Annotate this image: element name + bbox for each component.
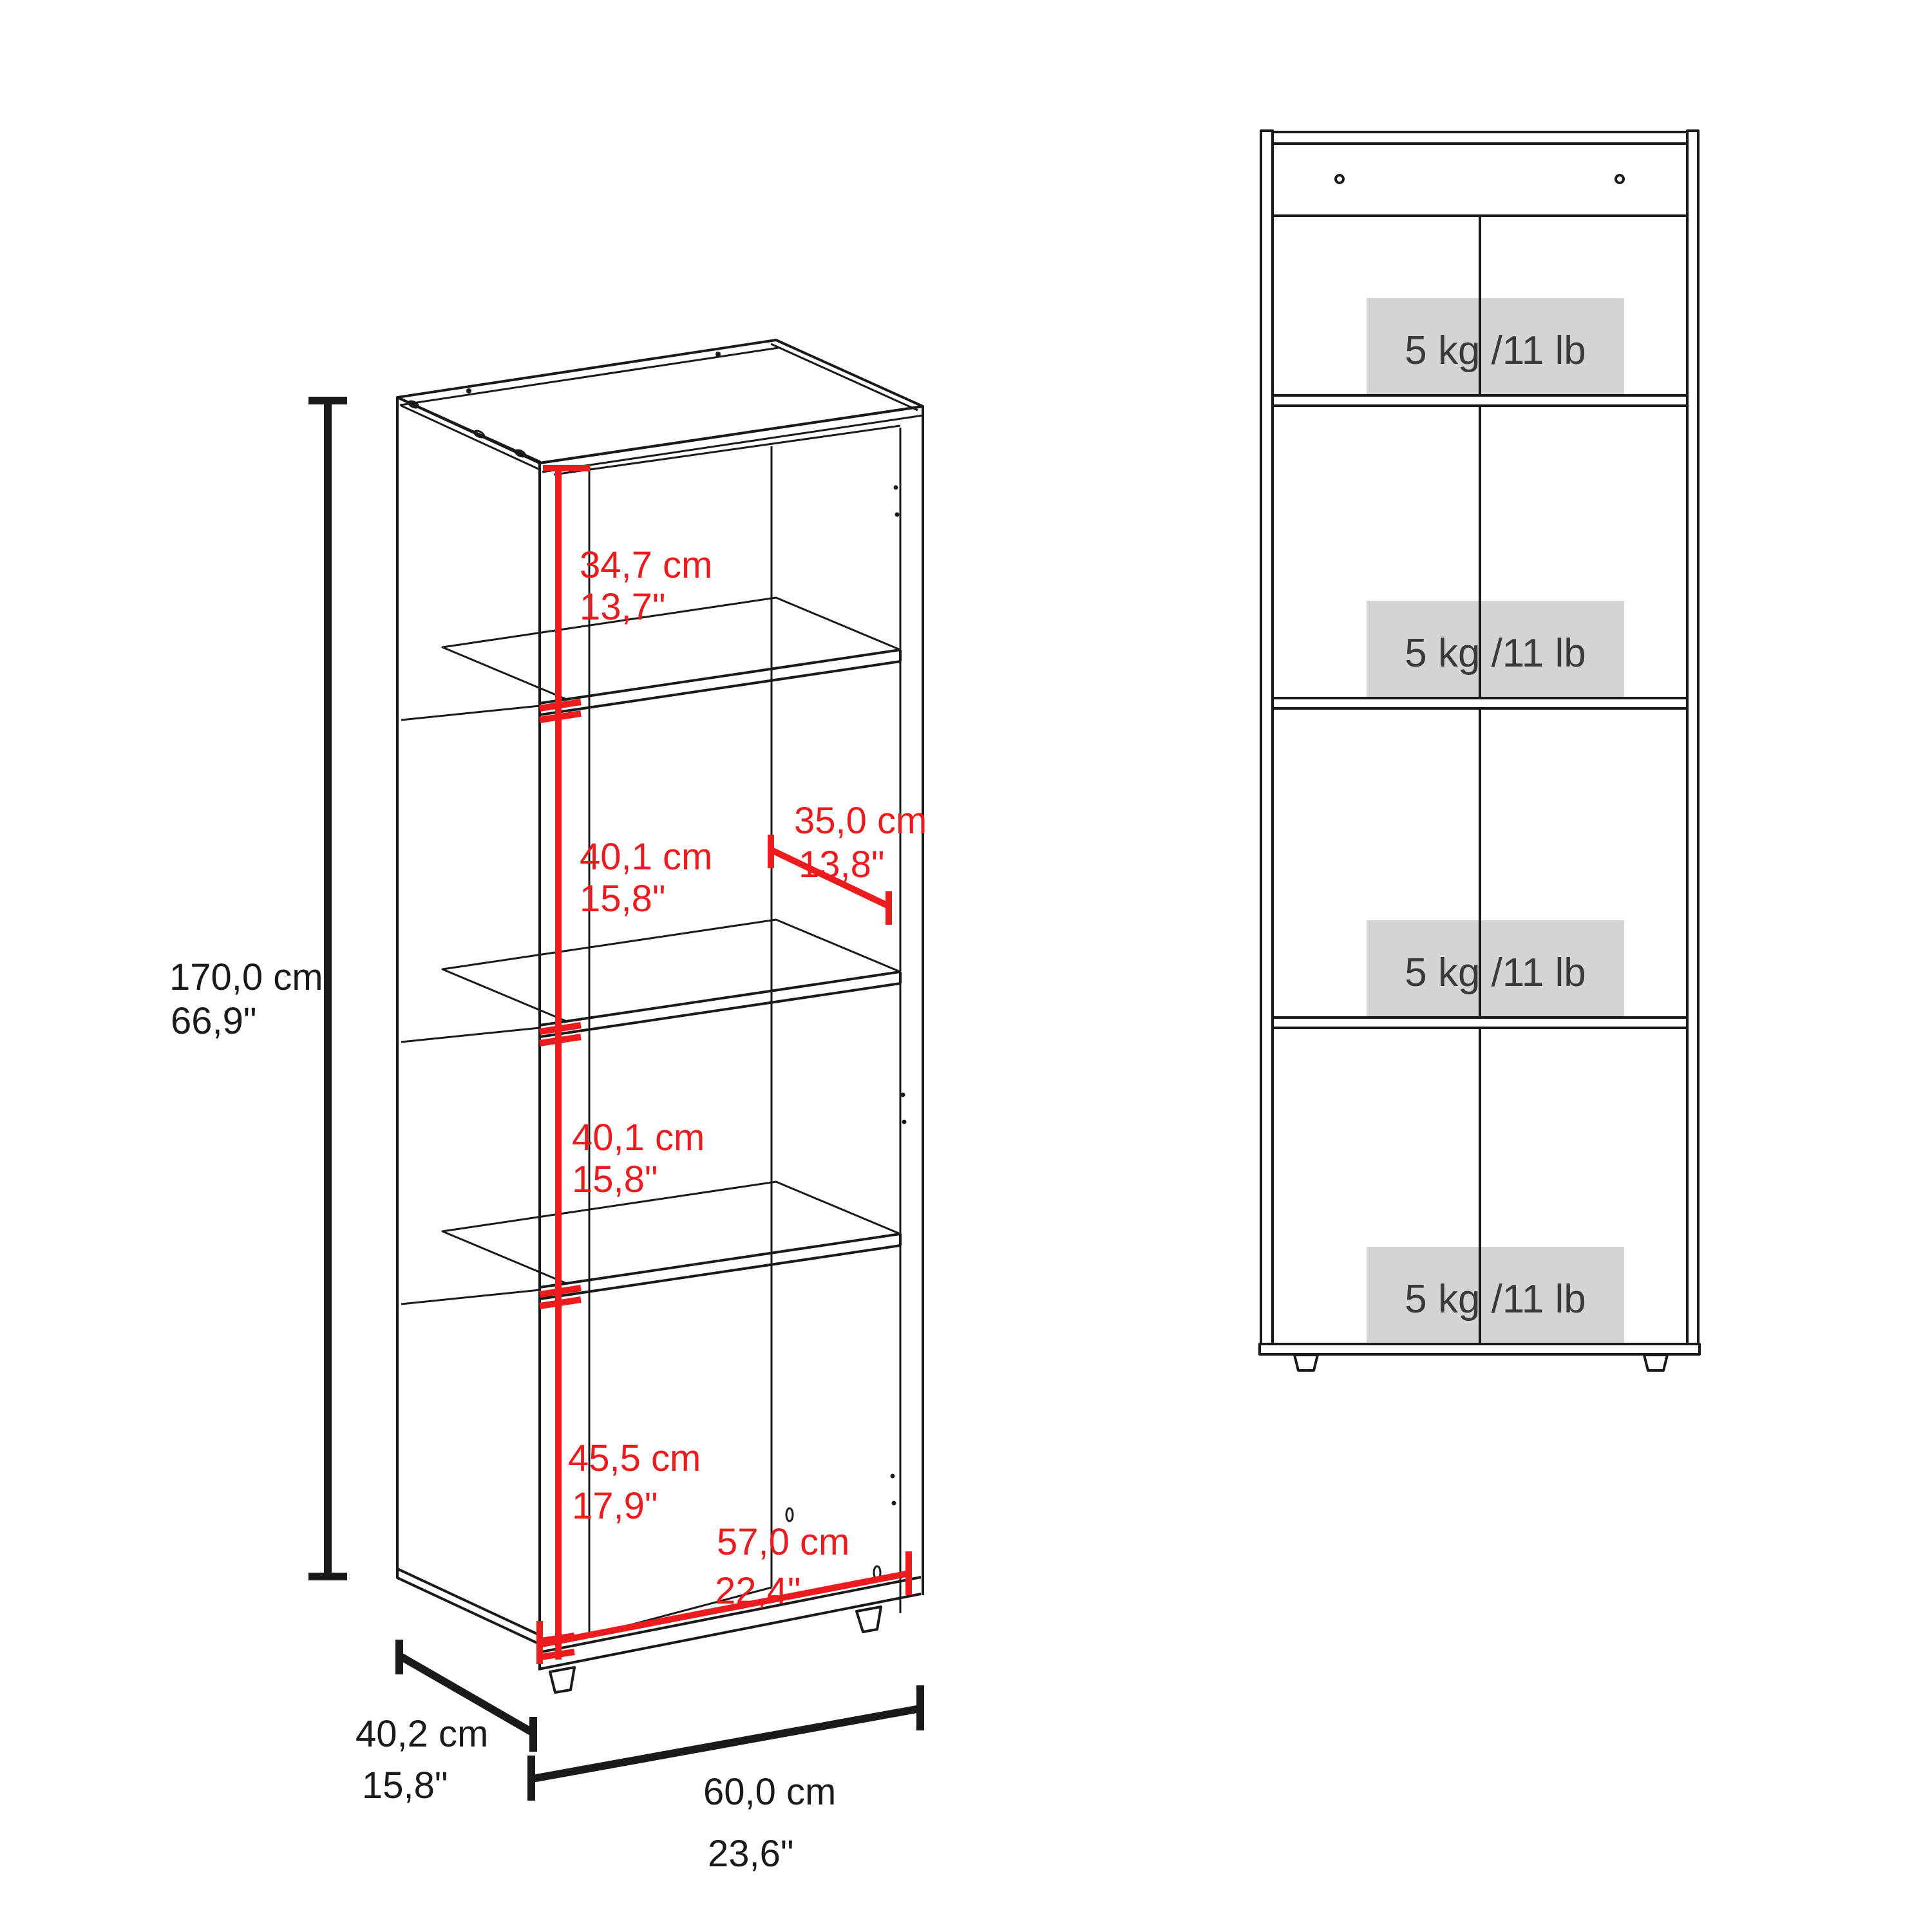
front-view-foot-left xyxy=(1294,1355,1318,1370)
top-hole-dot xyxy=(466,388,471,393)
capacity-label-1: 5 kg /11 lb xyxy=(1405,328,1586,373)
shelf-depth-label-in: 13,8" xyxy=(799,844,884,885)
left-side-panel xyxy=(397,397,540,1644)
width-dimension-line xyxy=(533,1709,920,1779)
capacity-label-4: 5 kg /11 lb xyxy=(1405,1277,1586,1321)
shelf3-label-in: 15,8" xyxy=(572,1159,658,1200)
shelf-1 xyxy=(442,598,900,715)
perspective-view xyxy=(397,340,923,1692)
header-hole-left xyxy=(1336,175,1343,183)
interior-top-edge xyxy=(554,426,900,475)
front-foot-right xyxy=(857,1607,881,1632)
capacity-labels: 5 kg /11 lb 5 kg /11 lb 5 kg /11 lb 5 kg… xyxy=(1405,328,1586,1321)
left-panel-bottom-edge xyxy=(397,1569,540,1635)
top-front-edge-thickness xyxy=(542,415,923,472)
shelf-2 xyxy=(442,920,900,1037)
capacity-label-2: 5 kg /11 lb xyxy=(1405,631,1586,676)
header-hole-right xyxy=(1616,175,1624,183)
floor-oval-hole xyxy=(786,1508,793,1521)
top-front-edge xyxy=(540,406,923,463)
shelf2-label-in: 15,8" xyxy=(580,878,665,920)
furniture-dimension-diagram: 170,0 cm 66,9" 40,2 cm 15,8" 60,0 cm 23,… xyxy=(0,0,1932,1932)
shelf4-label-cm: 45,5 cm xyxy=(568,1437,701,1479)
front-view: 5 kg /11 lb 5 kg /11 lb 5 kg /11 lb 5 kg… xyxy=(1260,131,1700,1370)
shelf-depth-label-cm: 35,0 cm xyxy=(794,800,927,842)
red-dimension-labels: 34,7 cm 13,7" 40,1 cm 15,8" 35,0 cm 13,8… xyxy=(568,544,927,1612)
inner-width-label-cm: 57,0 cm xyxy=(717,1521,849,1563)
black-dimension-labels: 170,0 cm 66,9" 40,2 cm 15,8" 60,0 cm 23,… xyxy=(169,956,836,1875)
capacity-label-3: 5 kg /11 lb xyxy=(1405,951,1586,995)
shelf1-label-cm: 34,7 cm xyxy=(580,544,712,586)
front-right-stile xyxy=(1687,131,1698,1344)
left-panel-joint-lines xyxy=(401,706,540,1304)
width-label-cm: 60,0 cm xyxy=(703,1771,836,1813)
inner-width-label-in: 22,4" xyxy=(715,1570,800,1612)
front-view-foot-right xyxy=(1644,1355,1667,1370)
shelf-3 xyxy=(442,1182,900,1299)
diagram-canvas: 170,0 cm 66,9" 40,2 cm 15,8" 60,0 cm 23,… xyxy=(0,0,1932,1932)
left-panel-top-edge-strip xyxy=(401,406,540,469)
width-label-in: 23,6" xyxy=(708,1833,793,1875)
height-label-in: 66,9" xyxy=(171,1000,256,1042)
top-right-edge-line xyxy=(771,344,918,410)
shelf4-label-in: 17,9" xyxy=(572,1485,658,1527)
shelf2-label-cm: 40,1 cm xyxy=(580,836,712,878)
front-left-stile xyxy=(1261,131,1273,1344)
front-plinth xyxy=(1260,1344,1700,1354)
capacity-boxes xyxy=(1367,298,1624,1344)
shelf1-label-in: 13,7" xyxy=(580,586,665,628)
height-label-cm: 170,0 cm xyxy=(169,956,323,998)
depth-label-in: 15,8" xyxy=(362,1765,448,1806)
shelf-pin-holes xyxy=(891,486,907,1506)
top-back-edge-line xyxy=(400,348,779,405)
front-foot-left xyxy=(550,1667,574,1692)
top-hole-dot xyxy=(715,352,721,357)
shelf3-label-cm: 40,1 cm xyxy=(572,1117,705,1159)
depth-label-cm: 40,2 cm xyxy=(355,1713,488,1755)
